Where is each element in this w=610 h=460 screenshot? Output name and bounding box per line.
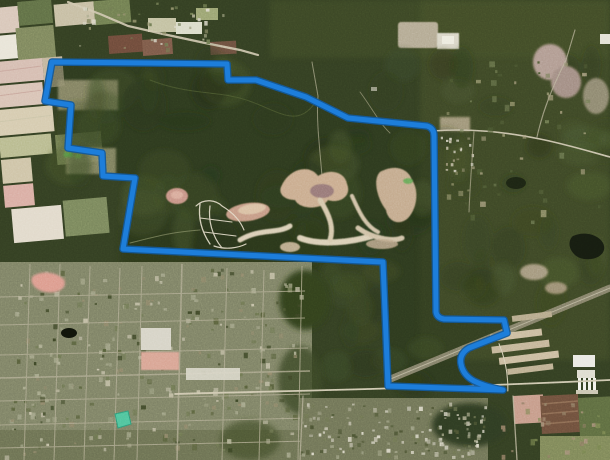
satellite-map-canvas[interactable]: [0, 0, 610, 460]
grain-overlay: [0, 0, 610, 460]
satellite-map-view[interactable]: [0, 0, 610, 460]
